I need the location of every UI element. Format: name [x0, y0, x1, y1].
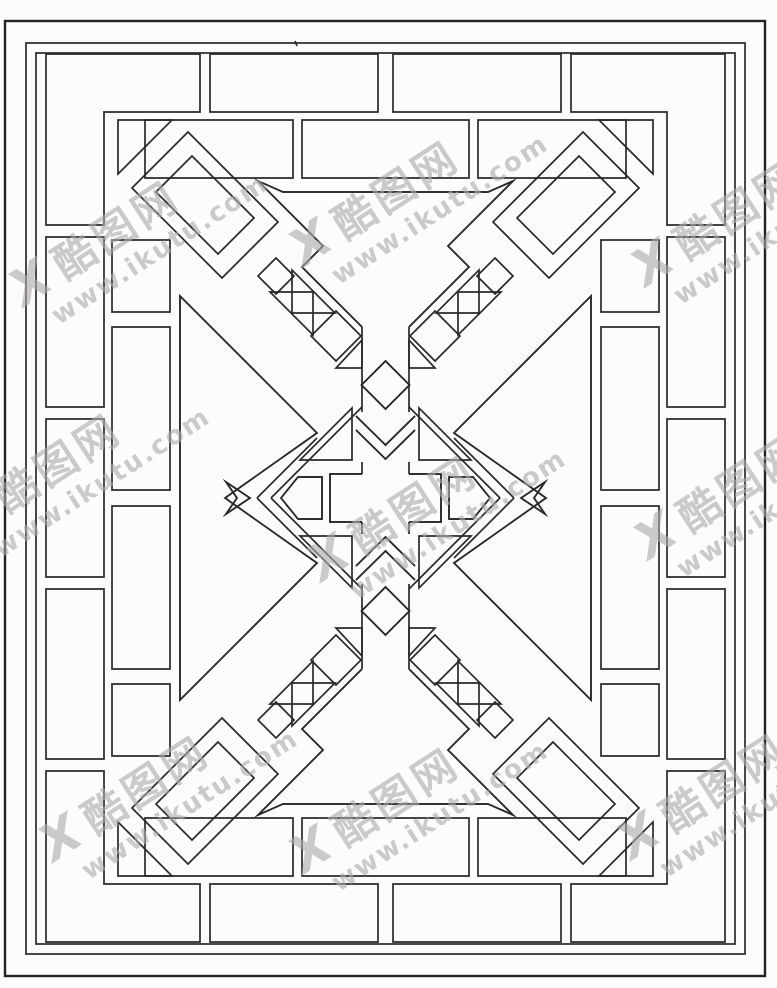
- lattice-drawing-page: X酷图网 www.ikutu.com X酷图网 www.ikutu.com X酷…: [0, 0, 777, 988]
- watermark: X酷图网 www.ikutu.com: [0, 354, 216, 577]
- watermark: X酷图网 www.ikutu.com: [604, 674, 777, 897]
- quadrant-top-right: [258, 54, 725, 700]
- watermark-layer: X酷图网 www.ikutu.com X酷图网 www.ikutu.com X酷…: [0, 81, 777, 911]
- paper-speck: [295, 41, 297, 46]
- lattice-pattern-drawing: X酷图网 www.ikutu.com X酷图网 www.ikutu.com X酷…: [0, 0, 777, 988]
- watermark: X酷图网 www.ikutu.com: [26, 676, 304, 899]
- watermark: X酷图网 www.ikutu.com: [294, 396, 572, 619]
- watermark: X酷图网 www.ikutu.com: [618, 101, 777, 324]
